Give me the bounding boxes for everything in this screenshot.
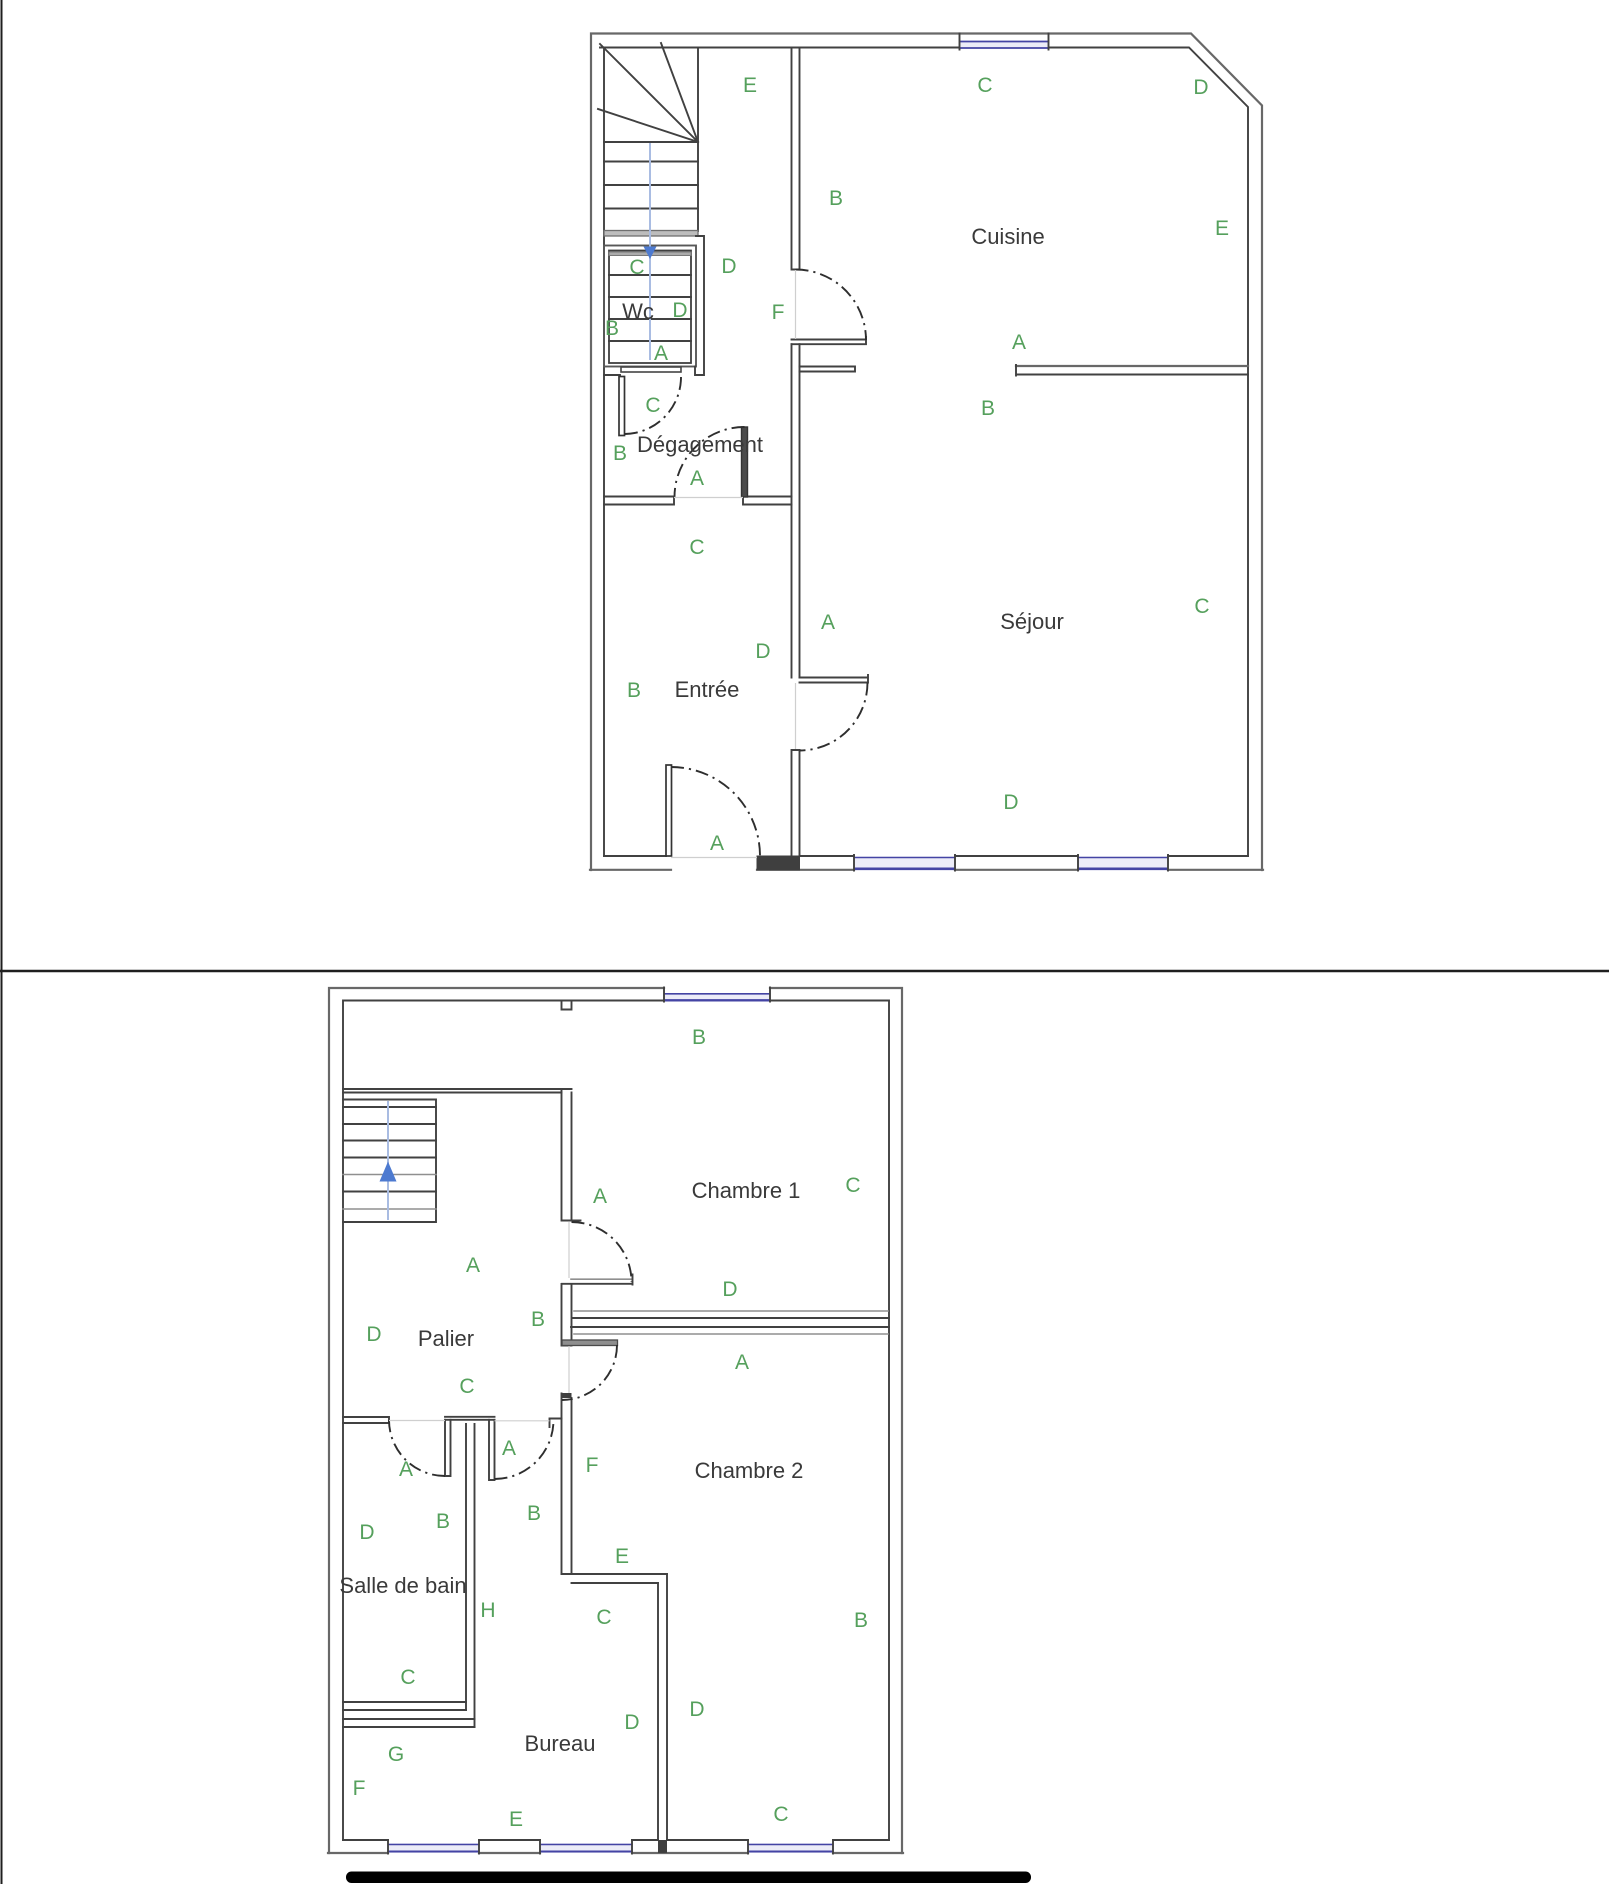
svg-text:A: A	[690, 467, 704, 490]
svg-text:Dégagement: Dégagement	[637, 432, 763, 457]
svg-text:D: D	[689, 1698, 704, 1721]
svg-text:A: A	[1012, 331, 1026, 354]
svg-text:E: E	[615, 1545, 629, 1568]
svg-text:E: E	[1215, 217, 1229, 240]
svg-text:C: C	[459, 1375, 474, 1398]
svg-text:C: C	[977, 74, 992, 97]
svg-text:D: D	[721, 255, 736, 278]
svg-text:A: A	[654, 342, 668, 365]
svg-text:Salle de bain: Salle de bain	[339, 1573, 466, 1598]
svg-text:Bureau: Bureau	[525, 1731, 596, 1756]
svg-text:B: B	[692, 1026, 706, 1049]
svg-text:A: A	[593, 1185, 607, 1208]
svg-text:G: G	[388, 1743, 404, 1766]
svg-text:D: D	[359, 1521, 374, 1544]
svg-text:Palier: Palier	[418, 1326, 474, 1351]
svg-text:B: B	[613, 442, 627, 465]
svg-text:F: F	[772, 301, 785, 324]
svg-text:B: B	[605, 317, 619, 340]
svg-text:C: C	[845, 1174, 860, 1197]
svg-text:B: B	[436, 1510, 450, 1533]
svg-text:D: D	[755, 640, 770, 663]
svg-text:D: D	[672, 299, 687, 322]
svg-text:A: A	[821, 611, 835, 634]
svg-text:A: A	[710, 832, 724, 855]
svg-text:H: H	[480, 1599, 495, 1622]
svg-text:D: D	[624, 1711, 639, 1734]
svg-text:C: C	[400, 1666, 415, 1689]
svg-text:Wc: Wc	[622, 299, 654, 324]
svg-text:C: C	[773, 1803, 788, 1826]
svg-text:C: C	[645, 394, 660, 417]
svg-text:D: D	[1193, 76, 1208, 99]
svg-text:C: C	[1194, 595, 1209, 618]
svg-text:D: D	[366, 1323, 381, 1346]
svg-text:C: C	[596, 1606, 611, 1629]
svg-text:A: A	[466, 1254, 480, 1277]
svg-text:A: A	[735, 1351, 749, 1374]
svg-text:E: E	[743, 74, 757, 97]
svg-text:A: A	[502, 1437, 516, 1460]
svg-text:D: D	[722, 1278, 737, 1301]
svg-text:E: E	[509, 1808, 523, 1831]
svg-text:F: F	[586, 1454, 599, 1477]
svg-text:Séjour: Séjour	[1000, 609, 1064, 634]
svg-text:B: B	[531, 1308, 545, 1331]
svg-text:A: A	[399, 1458, 413, 1481]
svg-text:F: F	[353, 1777, 366, 1800]
svg-text:Chambre 2: Chambre 2	[695, 1458, 804, 1483]
svg-text:Chambre 1: Chambre 1	[692, 1178, 801, 1203]
svg-text:C: C	[689, 536, 704, 559]
svg-text:B: B	[527, 1502, 541, 1525]
svg-text:B: B	[627, 679, 641, 702]
svg-text:B: B	[829, 187, 843, 210]
svg-text:B: B	[854, 1609, 868, 1632]
svg-text:Entrée: Entrée	[675, 677, 740, 702]
svg-text:D: D	[1003, 791, 1018, 814]
svg-text:Cuisine: Cuisine	[971, 224, 1044, 249]
svg-text:B: B	[981, 397, 995, 420]
svg-text:C: C	[629, 256, 644, 279]
